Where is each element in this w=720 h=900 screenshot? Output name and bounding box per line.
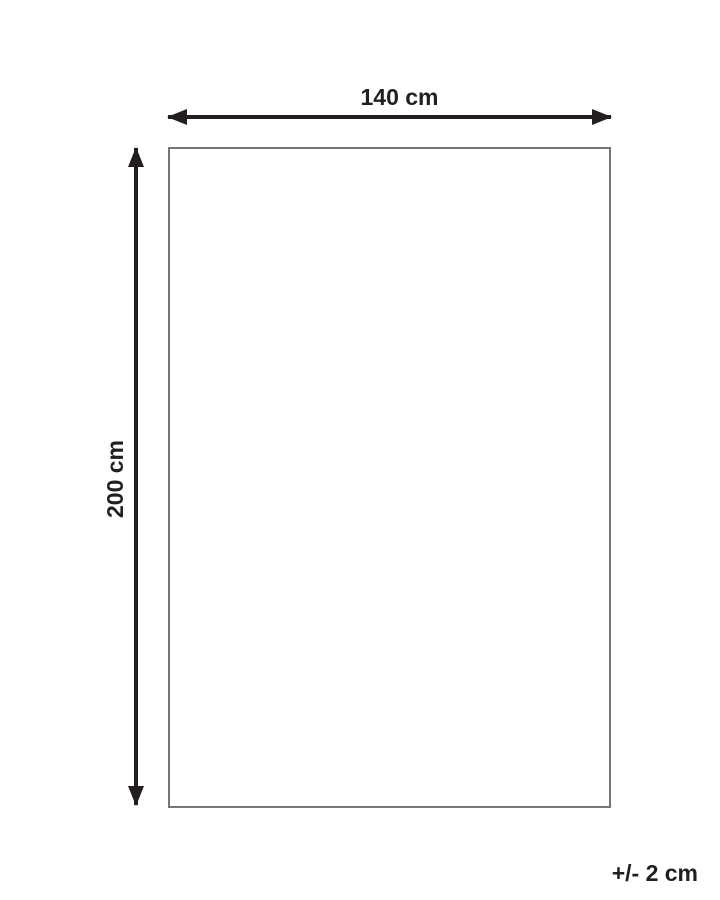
arrowhead-down-icon [128, 786, 144, 806]
arrowhead-up-icon [128, 147, 144, 167]
dimension-diagram: 140 cm 200 cm +/- 2 cm [0, 0, 720, 900]
arrowhead-right-icon [592, 109, 612, 125]
product-outline-rectangle [168, 147, 611, 808]
tolerance-label: +/- 2 cm [612, 860, 698, 886]
height-dimension-arrow [134, 148, 138, 805]
arrowhead-left-icon [167, 109, 187, 125]
width-dimension-label: 140 cm [178, 84, 621, 110]
height-dimension-label: 200 cm [102, 440, 128, 518]
width-dimension-arrow [168, 115, 611, 119]
